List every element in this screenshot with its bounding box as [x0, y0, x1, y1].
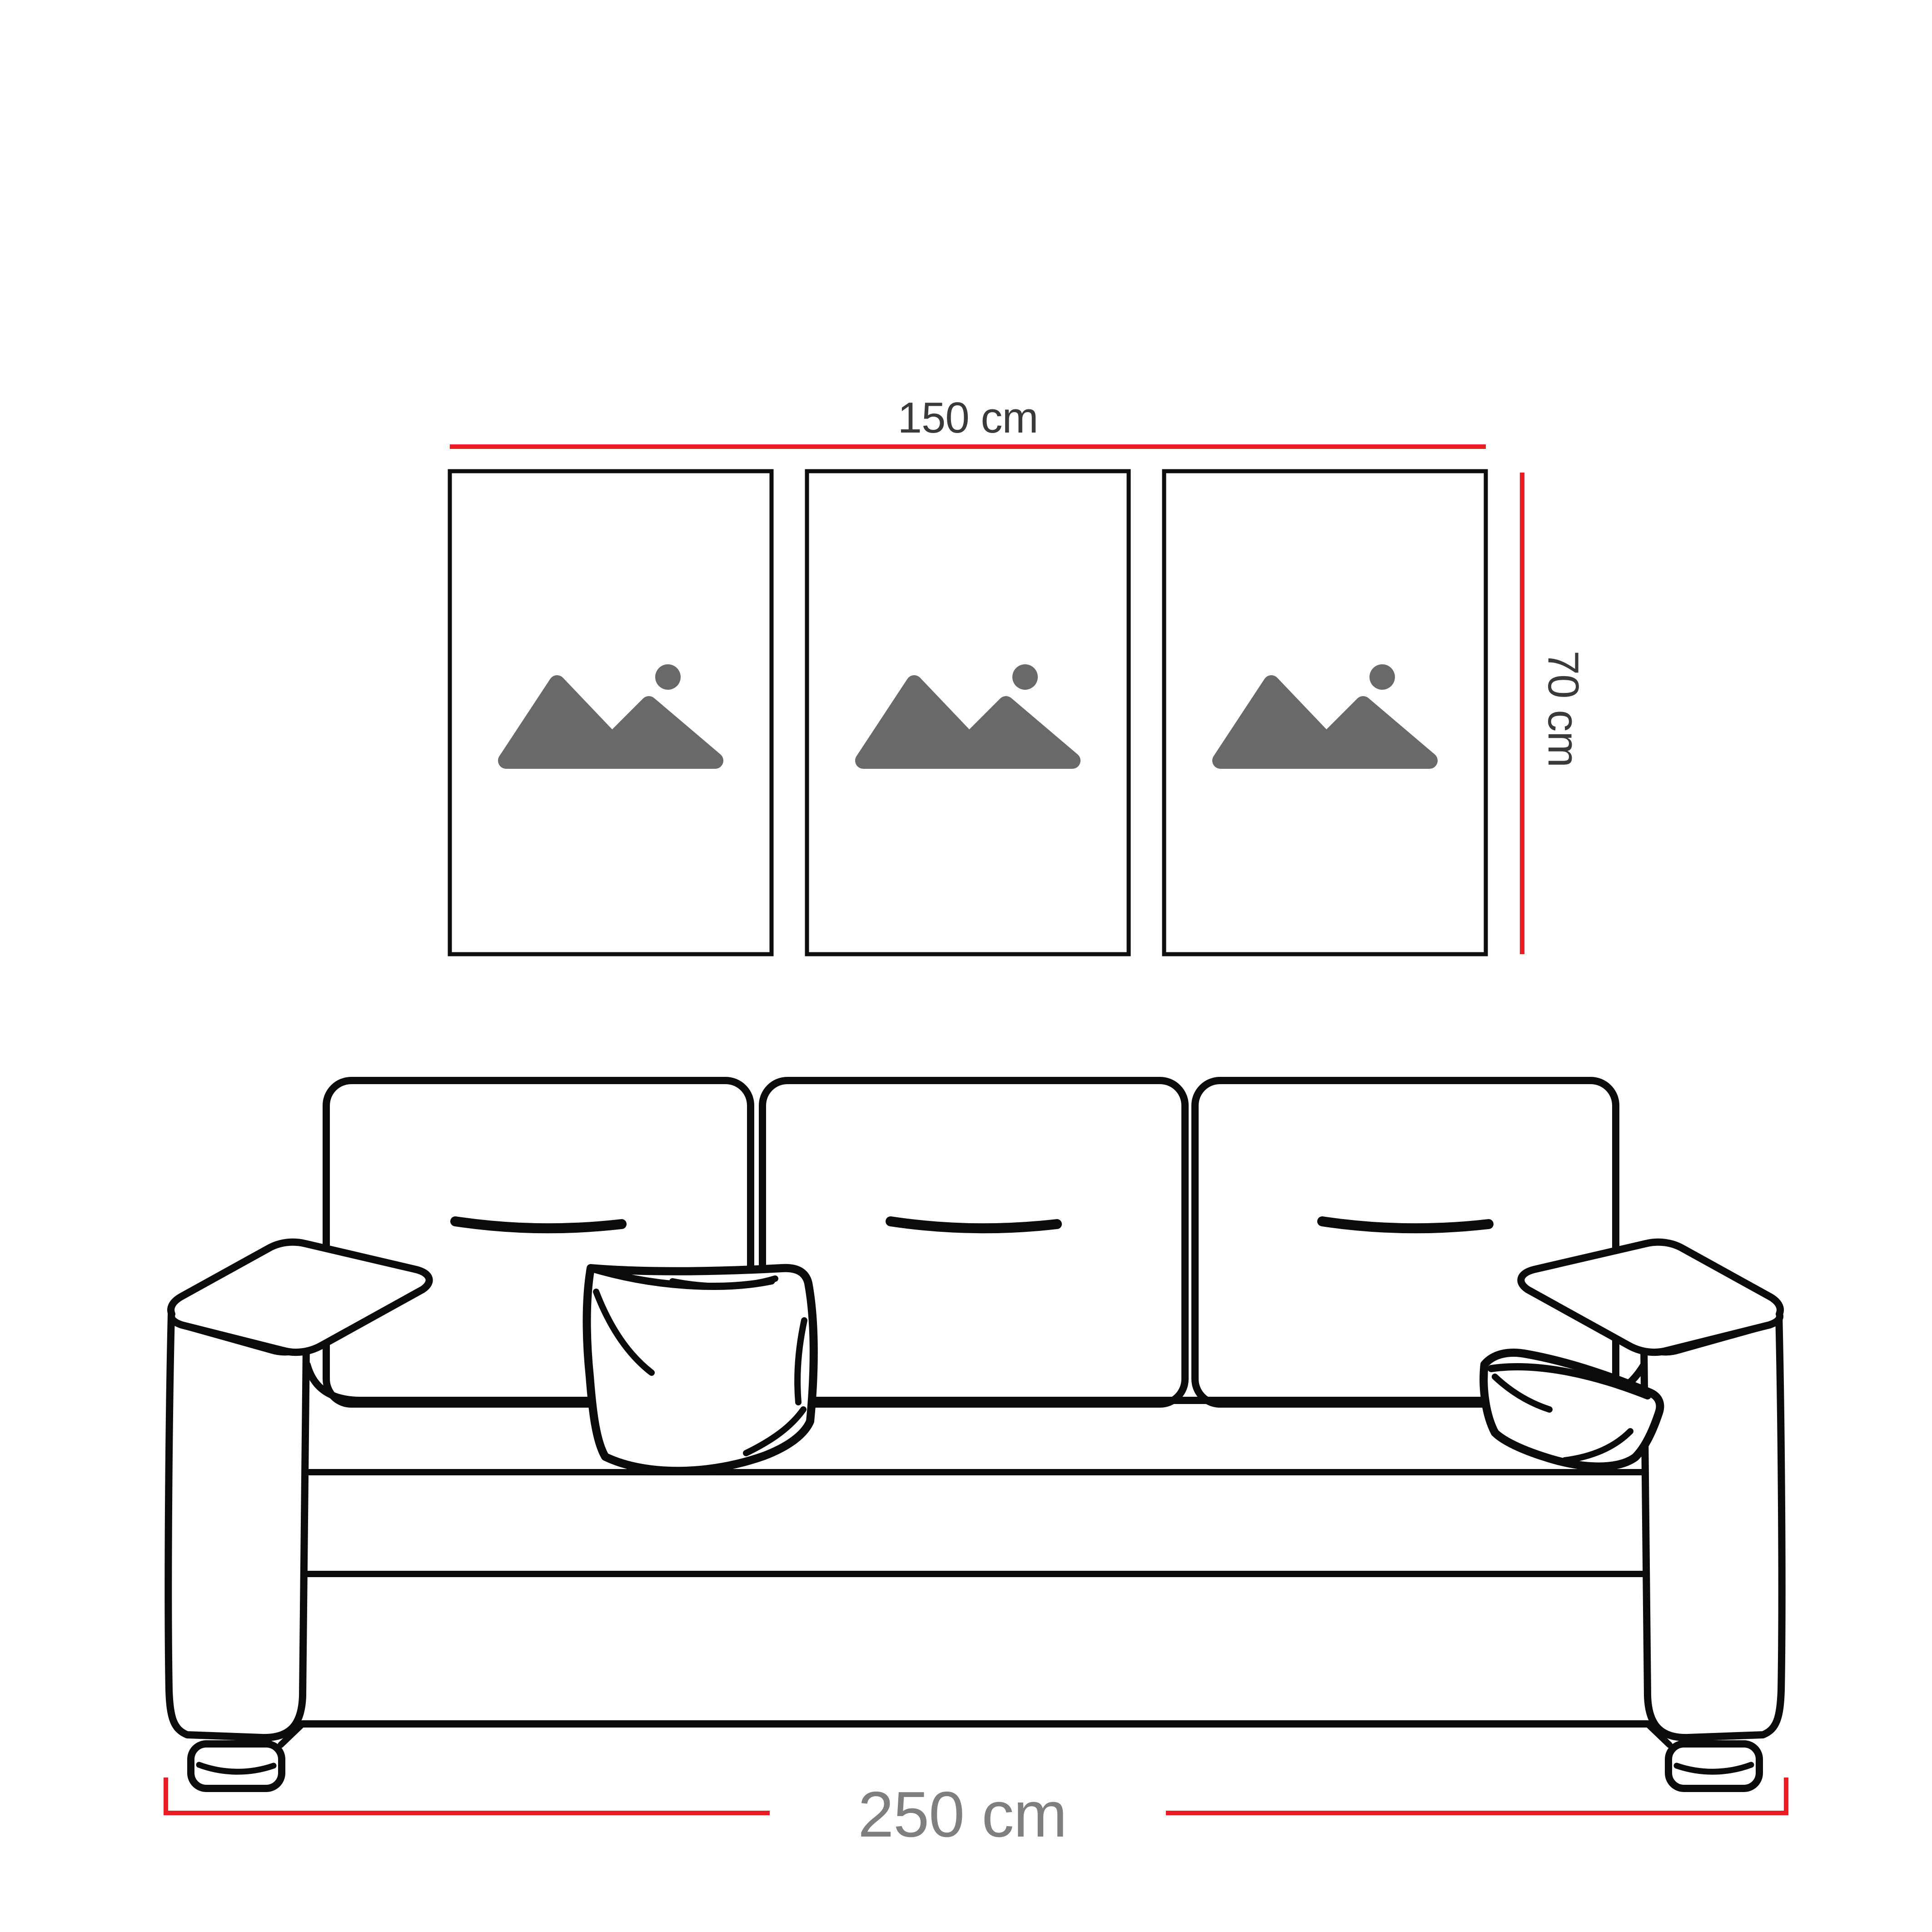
- frames-height-label: 70 cm: [1539, 651, 1588, 767]
- frame-border-2: [807, 471, 1129, 954]
- frames-width-label: 150 cm: [898, 393, 1038, 442]
- right-armrest-front: [1644, 1315, 1782, 1738]
- right-dimension-line: [1520, 473, 1524, 954]
- top-width-dimension: 150 cm: [450, 393, 1486, 449]
- frame-border-1: [450, 471, 772, 954]
- left-armrest-front: [168, 1315, 306, 1738]
- right-height-dimension: 70 cm: [1520, 473, 1588, 954]
- bottom-dimension-left-tick: [164, 1778, 168, 1815]
- bottom-dimension-line-left: [164, 1811, 770, 1815]
- art-frame-1: [450, 471, 772, 954]
- seat-base: [281, 1365, 1669, 1745]
- bottom-dimension-right-tick: [1784, 1778, 1788, 1815]
- art-frame-3: [1164, 471, 1486, 954]
- pillow-outline: [587, 1268, 814, 1471]
- sofa-illustration: [168, 1081, 1782, 1788]
- sofa-width-label: 250 cm: [858, 1778, 1067, 1851]
- top-dimension-line: [450, 444, 1486, 449]
- frame-border-3: [1164, 471, 1486, 954]
- bottom-dimension-line-right: [1166, 1811, 1788, 1815]
- throw-pillow-left: [587, 1268, 814, 1471]
- art-frame-row: [450, 471, 1486, 954]
- bottom-width-dimension: 250 cm: [164, 1778, 1788, 1851]
- size-guide-canvas: 150 cm 70 cm: [0, 0, 1932, 1932]
- throw-pillow-right: [1484, 1353, 1660, 1467]
- size-guide-illustration: 150 cm 70 cm: [0, 0, 1932, 1932]
- back-cushion-2: [762, 1081, 1185, 1404]
- art-frame-2: [807, 471, 1129, 954]
